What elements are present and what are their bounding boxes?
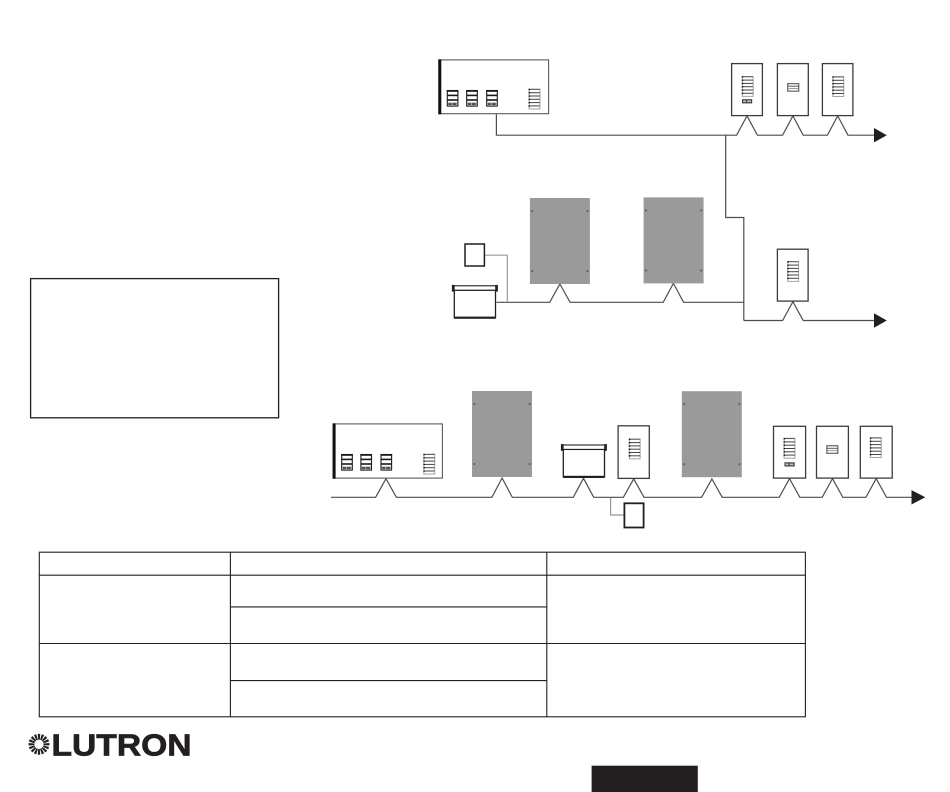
svg-text:LUTRON: LUTRON <box>52 728 192 763</box>
